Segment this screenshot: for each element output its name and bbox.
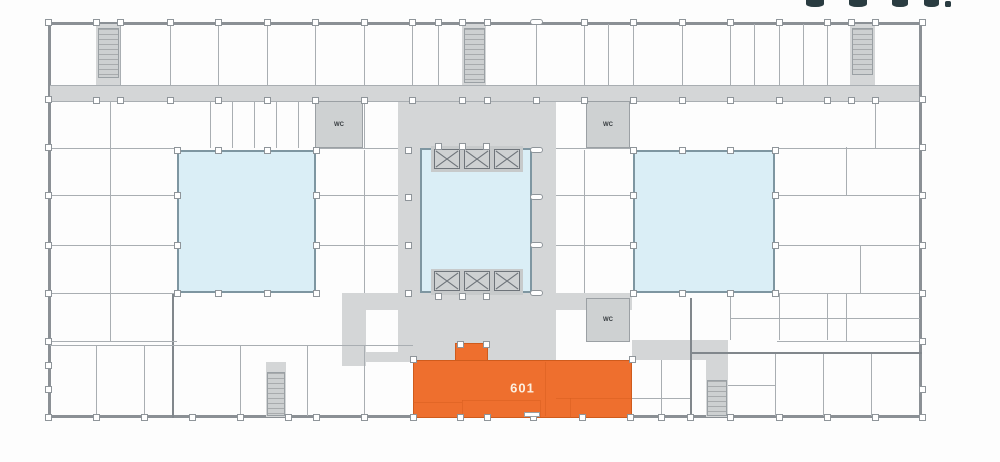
- elevator-icon: [434, 149, 460, 169]
- column-marker: [630, 19, 637, 26]
- column-marker: [872, 414, 879, 421]
- wall-partition: [318, 195, 398, 196]
- column-marker: [405, 147, 412, 154]
- column-marker: [457, 341, 464, 348]
- wall-partition: [240, 345, 241, 416]
- elevator-icon: [464, 149, 490, 169]
- column-marker: [435, 293, 442, 300]
- column-marker: [93, 19, 100, 26]
- column-marker: [919, 338, 926, 345]
- column-marker: [824, 414, 831, 421]
- wall-partition: [50, 345, 413, 346]
- column-marker: [313, 192, 320, 199]
- elevator-icon: [494, 271, 520, 291]
- column-marker: [215, 19, 222, 26]
- column-marker: [772, 242, 779, 249]
- wall-partition: [827, 24, 828, 85]
- column-marker: [361, 97, 368, 104]
- stairwell: [852, 28, 873, 75]
- column-marker: [848, 19, 855, 26]
- wall-partition: [754, 24, 755, 85]
- column-marker: [215, 97, 222, 104]
- wall-partition: [584, 24, 585, 85]
- wall-partition: [232, 101, 233, 148]
- column-marker: [405, 194, 412, 201]
- column-marker: [483, 341, 490, 348]
- wall-partition: [682, 24, 683, 85]
- column-marker: [630, 242, 637, 249]
- column-marker: [658, 414, 665, 421]
- wall-partition: [315, 24, 316, 85]
- column-marker: [727, 97, 734, 104]
- wall: [172, 293, 174, 418]
- column-marker: [45, 290, 52, 297]
- column-marker: [313, 290, 320, 297]
- column-marker: [872, 97, 879, 104]
- column-marker: [45, 144, 52, 151]
- column-marker: [405, 290, 412, 297]
- column-marker: [679, 147, 686, 154]
- column-marker: [776, 19, 783, 26]
- column-marker: [630, 97, 637, 104]
- wall-partition: [730, 24, 731, 85]
- column-marker: [174, 192, 181, 199]
- column-marker: [167, 97, 174, 104]
- column-marker: [630, 192, 637, 199]
- column-marker: [45, 242, 52, 249]
- floor-plan-canvas: WC WC WC 601: [0, 0, 1000, 462]
- wall-partition: [661, 360, 662, 418]
- wall-partition: [779, 293, 780, 340]
- wall-partition: [875, 101, 876, 148]
- column-marker: [919, 144, 926, 151]
- wall-partition: [50, 85, 919, 86]
- wall-partition: [608, 24, 609, 85]
- unit-wall-line: [556, 398, 632, 399]
- logo-fragment-icon: [806, 0, 824, 7]
- column-marker: [484, 19, 491, 26]
- wc-label: WC: [603, 317, 613, 323]
- stairwell: [707, 380, 727, 416]
- door-marker: [524, 412, 540, 417]
- wall-partition: [298, 101, 299, 148]
- column-marker: [872, 19, 879, 26]
- column-marker: [435, 143, 442, 150]
- wc-room: WC: [586, 298, 630, 342]
- column-marker: [264, 97, 271, 104]
- wall-partition: [777, 341, 920, 342]
- logo-fragment-icon: [849, 0, 867, 7]
- wall-partition: [584, 150, 585, 293]
- column-marker: [93, 414, 100, 421]
- wall-partition: [871, 352, 872, 416]
- wall-partition: [254, 101, 255, 148]
- column-marker: [679, 97, 686, 104]
- column-marker: [312, 19, 319, 26]
- wall-partition: [777, 293, 920, 294]
- wall-partition: [860, 245, 861, 293]
- column-marker: [459, 97, 466, 104]
- column-marker: [919, 96, 926, 103]
- wall-partition: [364, 101, 365, 148]
- wall-partition: [96, 345, 97, 416]
- corridor: [342, 293, 400, 310]
- wall-partition: [364, 150, 365, 293]
- column-marker: [824, 97, 831, 104]
- corridor: [342, 310, 366, 366]
- wall-partition: [536, 24, 537, 85]
- column-marker: [264, 147, 271, 154]
- wall-partition: [779, 24, 780, 85]
- column-marker: [776, 97, 783, 104]
- column-marker: [459, 143, 466, 150]
- column-marker: [483, 293, 490, 300]
- column-marker: [409, 97, 416, 104]
- column-marker: [679, 290, 686, 297]
- wall-partition: [777, 195, 920, 196]
- column-marker: [361, 414, 368, 421]
- column-marker: [313, 242, 320, 249]
- wall-partition: [827, 293, 828, 340]
- wall-partition: [438, 24, 439, 85]
- column-marker: [727, 19, 734, 26]
- column-marker: [530, 194, 543, 200]
- wall-partition: [823, 352, 824, 416]
- wall-partition: [50, 341, 177, 342]
- elevator-icon: [434, 271, 460, 291]
- column-marker: [313, 147, 320, 154]
- column-marker: [174, 242, 181, 249]
- wall-partition: [120, 24, 121, 85]
- column-marker: [776, 414, 783, 421]
- wall-partition: [633, 24, 634, 85]
- wall-partition: [218, 24, 219, 85]
- column-marker: [581, 19, 588, 26]
- column-marker: [93, 97, 100, 104]
- unit-wall-line: [462, 400, 540, 401]
- column-marker: [45, 386, 52, 393]
- wall-partition: [276, 101, 277, 148]
- logo-dot-icon: [945, 1, 951, 7]
- corridor: [366, 352, 414, 362]
- column-marker: [264, 19, 271, 26]
- column-marker: [581, 97, 588, 104]
- column-marker: [45, 414, 52, 421]
- wall-partition: [210, 101, 211, 148]
- wc-room: WC: [315, 101, 363, 148]
- column-marker: [727, 290, 734, 297]
- wall-partition: [803, 24, 804, 85]
- stairwell: [464, 28, 485, 83]
- wall-partition: [110, 101, 111, 341]
- wall-partition: [144, 345, 145, 416]
- column-marker: [237, 414, 244, 421]
- column-marker: [772, 192, 779, 199]
- column-marker: [484, 414, 491, 421]
- column-marker: [117, 19, 124, 26]
- column-marker: [410, 414, 417, 421]
- column-marker: [264, 290, 271, 297]
- wall-partition: [50, 195, 177, 196]
- atrium: [177, 150, 316, 293]
- column-marker: [117, 97, 124, 104]
- column-marker: [313, 414, 320, 421]
- wall-partition: [730, 293, 731, 340]
- unit-wall-line: [413, 402, 462, 403]
- column-marker: [630, 147, 637, 154]
- wall-partition: [50, 148, 177, 149]
- unit-wall-line: [570, 398, 571, 418]
- column-marker: [459, 293, 466, 300]
- wall-partition: [846, 147, 847, 195]
- column-marker: [533, 97, 540, 104]
- wall-partition: [846, 293, 847, 341]
- column-marker: [919, 242, 926, 249]
- column-marker: [45, 19, 52, 26]
- atrium: [633, 150, 775, 293]
- column-marker: [405, 242, 412, 249]
- column-marker: [483, 143, 490, 150]
- column-marker: [215, 290, 222, 297]
- wc-label: WC: [334, 122, 344, 128]
- column-marker: [630, 290, 637, 297]
- column-marker: [629, 356, 636, 363]
- column-marker: [727, 147, 734, 154]
- wall-partition: [556, 195, 633, 196]
- column-marker: [627, 414, 634, 421]
- wall-partition: [364, 345, 365, 416]
- wall-partition: [775, 352, 776, 416]
- column-marker: [312, 97, 319, 104]
- unit-wall-line: [540, 400, 541, 417]
- logo-fragment-icon: [924, 0, 939, 7]
- column-marker: [919, 290, 926, 297]
- column-marker: [361, 19, 368, 26]
- unit-wall-line: [545, 362, 546, 416]
- wall-partition: [556, 148, 633, 149]
- column-marker: [45, 362, 52, 369]
- column-marker: [45, 338, 52, 345]
- column-marker: [919, 414, 926, 421]
- wall-partition: [50, 245, 177, 246]
- wall-partition: [632, 398, 690, 399]
- column-marker: [410, 356, 417, 363]
- column-marker: [772, 147, 779, 154]
- stairwell: [98, 28, 119, 78]
- column-marker: [215, 147, 222, 154]
- column-marker: [579, 414, 586, 421]
- column-marker: [848, 97, 855, 104]
- column-marker: [530, 19, 543, 25]
- wall-partition: [777, 148, 920, 149]
- column-marker: [530, 147, 543, 153]
- column-marker: [141, 414, 148, 421]
- elevator-icon: [494, 149, 520, 169]
- column-marker: [189, 414, 196, 421]
- column-marker: [919, 192, 926, 199]
- column-marker: [679, 19, 686, 26]
- wall-partition: [50, 293, 177, 294]
- wall-partition: [730, 318, 920, 319]
- column-marker: [174, 147, 181, 154]
- wall-partition: [364, 24, 365, 85]
- wall: [690, 352, 922, 354]
- column-marker: [45, 192, 52, 199]
- column-marker: [409, 19, 416, 26]
- wall-partition: [318, 148, 398, 149]
- wall-partition: [318, 245, 398, 246]
- wall: [690, 298, 692, 418]
- column-marker: [687, 414, 694, 421]
- logo-fragment-icon: [892, 0, 908, 7]
- column-marker: [459, 19, 466, 26]
- wall-partition: [267, 24, 268, 85]
- column-marker: [45, 96, 52, 103]
- wall-partition: [728, 385, 775, 386]
- wc-room: WC: [586, 101, 630, 148]
- elevator-icon: [464, 271, 490, 291]
- wall-partition: [307, 345, 308, 416]
- wall-partition: [777, 245, 920, 246]
- column-marker: [484, 97, 491, 104]
- unit-601[interactable]: 601: [413, 360, 632, 418]
- column-marker: [167, 19, 174, 26]
- column-marker: [435, 19, 442, 26]
- column-marker: [824, 19, 831, 26]
- column-marker: [530, 242, 543, 248]
- column-marker: [727, 414, 734, 421]
- column-marker: [457, 414, 464, 421]
- unit-601-label: 601: [414, 380, 631, 395]
- column-marker: [174, 290, 181, 297]
- column-marker: [919, 386, 926, 393]
- wc-label: WC: [603, 122, 613, 128]
- corridor: [632, 340, 728, 360]
- column-marker: [530, 290, 543, 296]
- wall-partition: [170, 24, 171, 85]
- wall-partition: [556, 245, 633, 246]
- column-marker: [285, 414, 292, 421]
- column-marker: [772, 290, 779, 297]
- stairwell: [267, 372, 285, 416]
- wall-partition: [412, 24, 413, 85]
- column-marker: [919, 19, 926, 26]
